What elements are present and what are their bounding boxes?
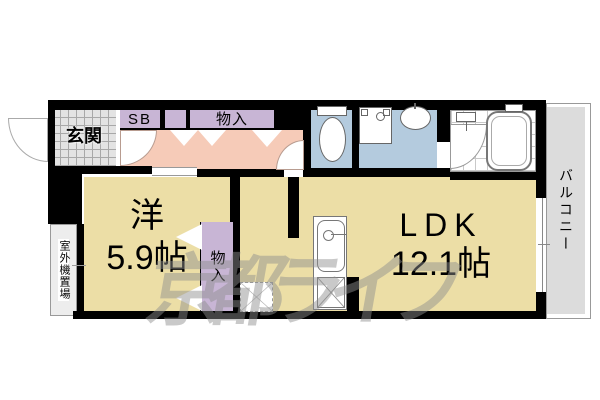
ldk-type: LDK bbox=[348, 206, 534, 244]
wall bbox=[437, 100, 450, 142]
wall bbox=[186, 110, 190, 130]
entrance-door-arc-icon bbox=[8, 118, 48, 162]
outdoor-unit-space: 室外機置場 bbox=[50, 224, 77, 316]
balcony-window bbox=[536, 198, 546, 292]
toilet-tank-icon bbox=[317, 106, 347, 116]
wall bbox=[230, 177, 240, 222]
western-room-type: 洋 bbox=[74, 196, 220, 237]
kitchen-faucet-arm bbox=[331, 234, 346, 235]
watermark: 京都ライフ bbox=[141, 252, 455, 330]
wall bbox=[303, 110, 311, 169]
bifold-door-mark-icon bbox=[198, 130, 226, 146]
shoe-box: SB bbox=[120, 110, 160, 130]
hallway-storage: 物入 bbox=[190, 110, 274, 130]
wall bbox=[197, 169, 284, 177]
ldk-doorway bbox=[284, 169, 300, 177]
entrance-label: 玄関 bbox=[52, 127, 116, 145]
bathtub-icon bbox=[486, 111, 532, 171]
wall bbox=[536, 100, 546, 198]
wall bbox=[352, 110, 359, 169]
balcony-floor: バルコニー bbox=[547, 107, 585, 314]
washing-machine-pan-icon bbox=[359, 107, 392, 144]
shower-hose bbox=[466, 122, 467, 131]
wall bbox=[288, 177, 299, 238]
bifold-door-mark-icon bbox=[170, 130, 198, 146]
window-center-tick bbox=[538, 244, 550, 245]
sliding-door-opening bbox=[152, 167, 197, 176]
shower-mixer-icon bbox=[456, 112, 476, 122]
balcony: バルコニー bbox=[546, 103, 591, 319]
pan-drain bbox=[376, 112, 385, 121]
floor-plan: SB 物入 物入 バルコニー 室外機置場 bbox=[0, 0, 600, 400]
washbasin-faucet-icon bbox=[414, 103, 416, 109]
balcony-label: バルコニー bbox=[559, 168, 573, 253]
bathtub-faucet-icon bbox=[505, 104, 523, 112]
wall bbox=[82, 166, 152, 174]
wall bbox=[303, 168, 450, 177]
closet-small bbox=[165, 110, 186, 130]
sliding-window-icon bbox=[542, 198, 543, 292]
kitchen-faucet-icon bbox=[323, 230, 334, 241]
hallway-storage-label: 物入 bbox=[216, 112, 248, 127]
bathtub-inner bbox=[491, 116, 527, 166]
wall bbox=[536, 292, 546, 319]
bifold-door-mark-icon bbox=[252, 130, 282, 147]
wall bbox=[450, 172, 536, 180]
pan-corner bbox=[361, 109, 368, 116]
toilet-icon bbox=[319, 117, 346, 162]
outdoor-unit-label: 室外機置場 bbox=[58, 239, 69, 301]
washbasin-icon bbox=[400, 106, 431, 130]
shoe-box-label: SB bbox=[128, 112, 152, 127]
wall bbox=[48, 100, 536, 110]
wall bbox=[160, 110, 165, 130]
